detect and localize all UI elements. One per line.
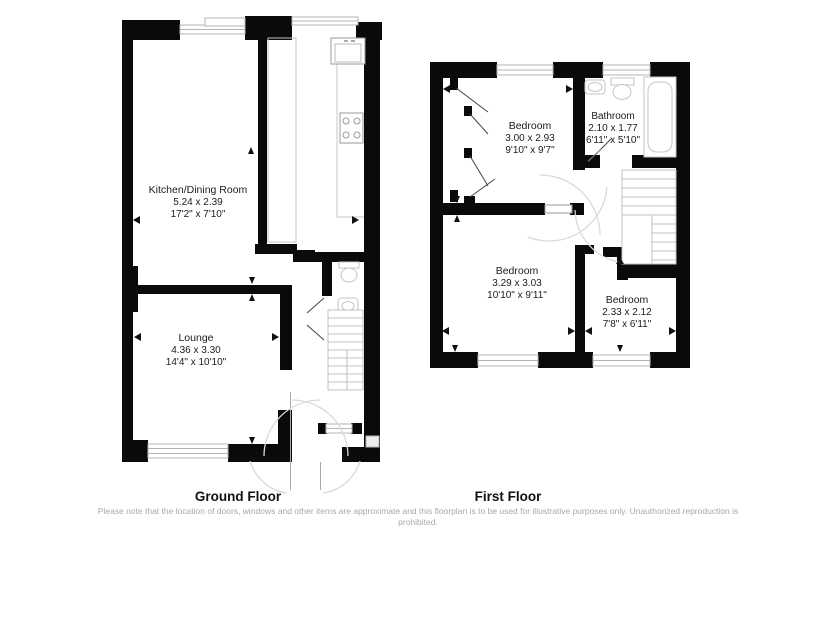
room-dim-metric: 5.24 x 2.39 bbox=[128, 197, 268, 210]
wall bbox=[313, 252, 365, 262]
wall bbox=[650, 62, 690, 78]
room-dim-imperial: 17'2" x 7'10" bbox=[128, 209, 268, 222]
stove-icon bbox=[340, 113, 363, 143]
room-dim-metric: 3.29 x 3.03 bbox=[457, 278, 577, 291]
room-dim-metric: 2.10 x 1.77 bbox=[572, 123, 654, 135]
toilet-icon bbox=[613, 85, 631, 100]
wc-fixtures bbox=[338, 262, 359, 314]
dim-arrow bbox=[442, 327, 449, 335]
kitchen-sink-icon bbox=[331, 38, 365, 64]
window bbox=[148, 444, 228, 458]
wall bbox=[430, 62, 497, 78]
first-floor-title: First Floor bbox=[428, 489, 588, 504]
dim-arrow bbox=[249, 294, 255, 301]
room-dim-imperial: 6'11" x 5'10" bbox=[572, 135, 654, 147]
room-dim-imperial: 10'10" x 9'11" bbox=[457, 290, 577, 303]
wall bbox=[245, 16, 292, 40]
toilet-icon bbox=[611, 78, 634, 85]
wall bbox=[293, 250, 315, 262]
ground-floor-title: Ground Floor bbox=[158, 489, 318, 504]
dim-arrow bbox=[454, 215, 460, 222]
wardrobe-door-leaf bbox=[470, 156, 488, 186]
wall bbox=[280, 285, 292, 370]
dim-arrow bbox=[249, 437, 255, 444]
dim-arrow bbox=[443, 85, 450, 93]
wall bbox=[430, 352, 478, 368]
basin-icon bbox=[342, 302, 354, 311]
room-dim-imperial: 7'8" x 6'11" bbox=[572, 319, 682, 332]
kitchen-fixtures bbox=[268, 38, 365, 242]
dim-arrow bbox=[452, 345, 458, 352]
wall bbox=[351, 423, 362, 434]
room-dim-metric: 4.36 x 3.30 bbox=[136, 345, 256, 358]
door-leaf bbox=[470, 179, 495, 197]
wall bbox=[620, 264, 690, 278]
wall bbox=[122, 20, 133, 462]
room-label-lounge: Lounge 4.36 x 3.30 14'4" x 10'10" bbox=[136, 332, 256, 370]
first-floor-stairs bbox=[622, 170, 676, 264]
door-arc bbox=[323, 461, 360, 493]
wall bbox=[650, 352, 690, 368]
wall bbox=[430, 62, 443, 368]
room-name: Bathroom bbox=[572, 111, 654, 123]
toilet-icon bbox=[339, 262, 359, 268]
window bbox=[366, 436, 379, 447]
door-jamb bbox=[464, 196, 475, 203]
wall bbox=[133, 285, 284, 294]
ground-floor-plan bbox=[122, 16, 382, 493]
room-name: Bedroom bbox=[457, 265, 577, 278]
room-name: Bedroom bbox=[572, 294, 682, 307]
dim-arrow bbox=[566, 85, 573, 93]
dim-arrow bbox=[248, 147, 254, 154]
toilet-icon bbox=[341, 268, 357, 282]
wall bbox=[278, 410, 292, 444]
wall bbox=[322, 252, 332, 296]
wall bbox=[255, 244, 297, 254]
room-label-bathroom: Bathroom 2.10 x 1.77 6'11" x 5'10" bbox=[572, 111, 654, 147]
room-dim-metric: 2.33 x 2.12 bbox=[572, 307, 682, 320]
room-label-bedroom-3: Bedroom 2.33 x 2.12 7'8" x 6'11" bbox=[572, 294, 682, 332]
kitchen-units bbox=[268, 38, 296, 242]
dim-arrow bbox=[272, 333, 279, 341]
room-name: Kitchen/Dining Room bbox=[128, 184, 268, 197]
wall bbox=[538, 352, 593, 368]
room-label-kitchen-dining: Kitchen/Dining Room 5.24 x 2.39 17'2" x … bbox=[128, 184, 268, 222]
door-leaf bbox=[307, 298, 324, 313]
wall bbox=[342, 447, 364, 462]
floorplan-page: Kitchen/Dining Room 5.24 x 2.39 17'2" x … bbox=[0, 0, 836, 620]
wall bbox=[122, 440, 148, 462]
stairs bbox=[622, 170, 676, 264]
wall bbox=[122, 20, 180, 40]
dim-arrow bbox=[249, 277, 255, 284]
disclaimer-text: Please note that the location of doors, … bbox=[88, 506, 748, 528]
wall bbox=[443, 203, 545, 215]
room-label-bedroom-2: Bedroom 3.29 x 3.03 10'10" x 9'11" bbox=[457, 265, 577, 303]
door-leaf bbox=[307, 325, 324, 340]
window bbox=[205, 18, 245, 26]
wall bbox=[228, 444, 292, 462]
ground-floor-stairs bbox=[328, 310, 363, 390]
room-dim-imperial: 14'4" x 10'10" bbox=[136, 357, 256, 370]
ground-floor-walls bbox=[122, 16, 382, 462]
wall bbox=[553, 62, 603, 78]
dim-arrow bbox=[617, 345, 623, 352]
room-name: Lounge bbox=[136, 332, 256, 345]
wall bbox=[364, 28, 380, 462]
door-opening bbox=[545, 205, 572, 213]
basin-icon bbox=[588, 83, 602, 92]
